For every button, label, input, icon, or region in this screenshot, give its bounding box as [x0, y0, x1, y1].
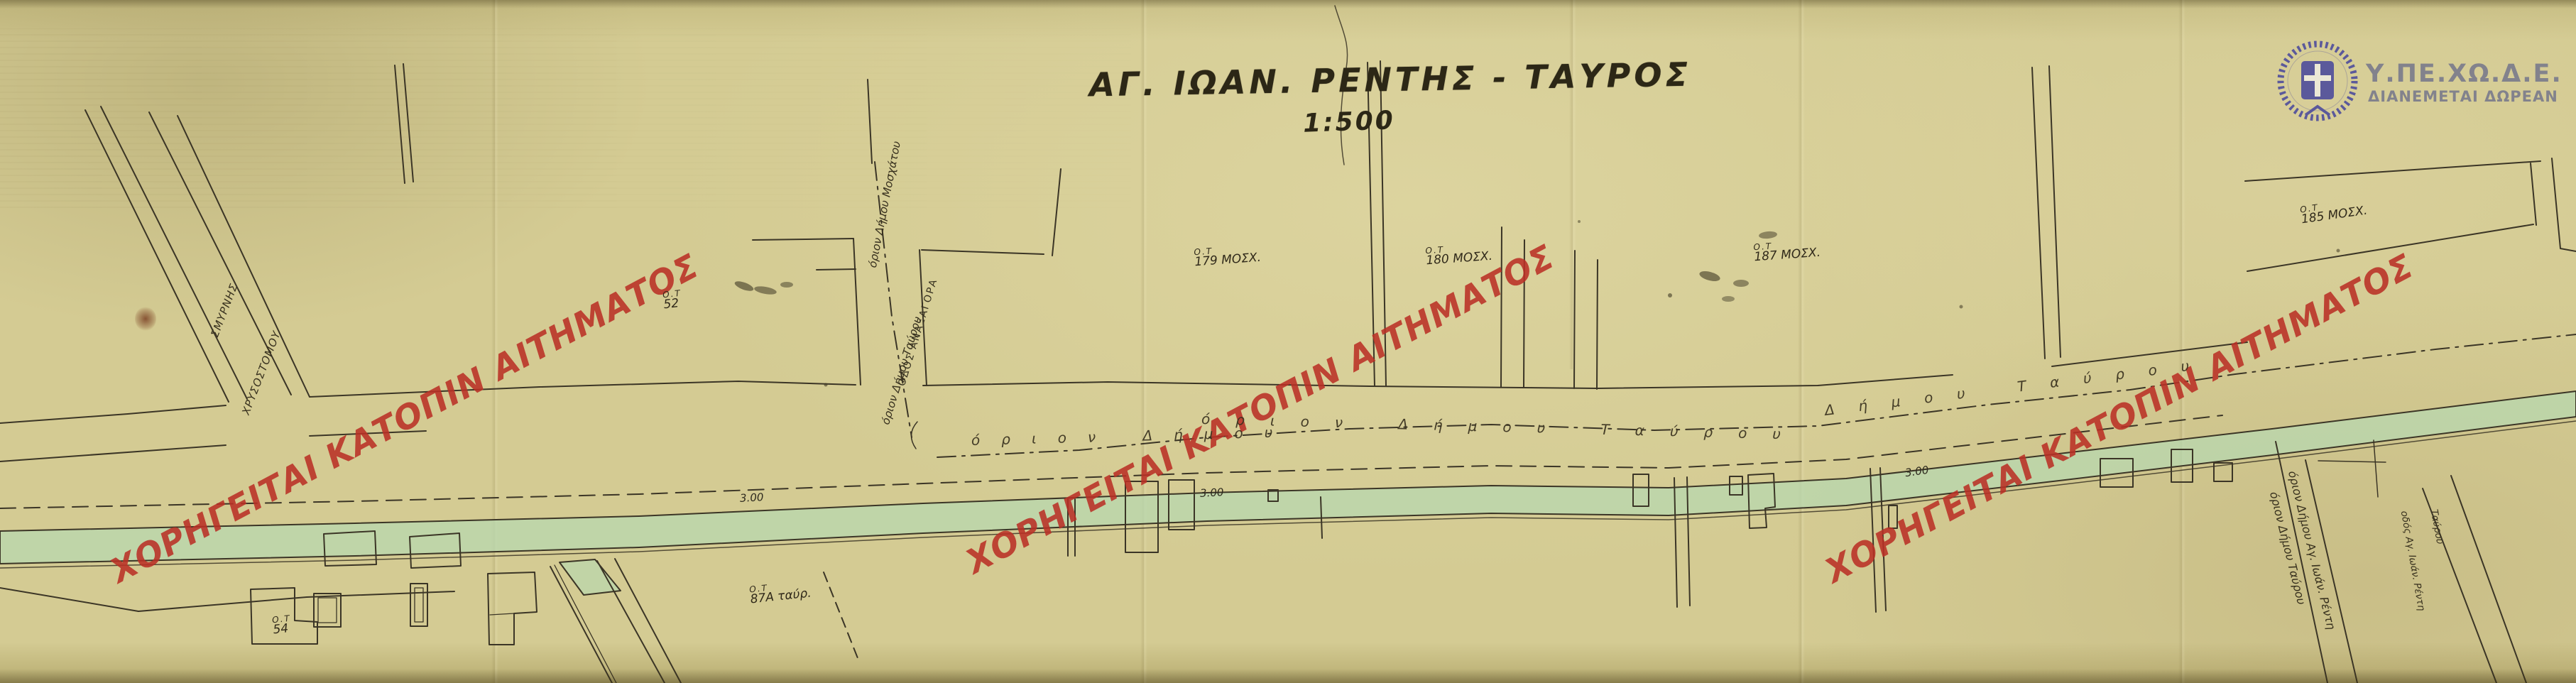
agency-acronym: Υ.ΠΕ.ΧΩ.Δ.Ε. [2366, 60, 2563, 88]
double-line [403, 64, 413, 182]
side-street-green-mouth [560, 559, 621, 595]
building [410, 584, 427, 626]
block-label-54: Ο.Τ 54 [272, 614, 293, 637]
block-label-179: Ο.Τ 179 ΜΟΣΧ. [1194, 244, 1261, 268]
block-edge [2531, 163, 2536, 225]
scan-edge-shadow-bottom [0, 669, 2576, 683]
street-edge [101, 106, 247, 399]
building [488, 572, 537, 645]
coat-of-arms-icon [2281, 44, 2354, 118]
block-edge [753, 239, 853, 240]
building [318, 598, 337, 623]
block-label-52: Ο.Τ 52 [662, 289, 683, 312]
lot-line [1574, 251, 1575, 388]
street-edge [2049, 66, 2061, 357]
double-line [395, 65, 405, 183]
street-edge [868, 80, 872, 163]
side-street-edge [615, 559, 681, 683]
street-edge [2451, 476, 2526, 683]
street-edge [85, 110, 229, 402]
road-north-edge [923, 375, 1953, 388]
road-width-dimension: 3.00 [1200, 486, 1224, 500]
street-edge [2032, 67, 2045, 359]
tick-line [2374, 440, 2378, 497]
block-label-187: Ο.Τ 187 ΜΟΣΧ. [1753, 239, 1821, 263]
building [490, 613, 514, 615]
boundary-bracket [911, 422, 917, 449]
block-edge [817, 269, 856, 270]
scanned-map-sheet: ΑΓ. ΙΩΑΝ. ΡΕΝΤΗΣ - ΤΑΥΡΟΣ 1:500 Υ.ΠΕ.ΧΩ.… [0, 0, 2576, 683]
side-street-edge [597, 561, 665, 683]
block-edge [2245, 161, 2540, 181]
road-inner-line [0, 445, 226, 461]
map-scale: 1:500 [1303, 106, 1396, 138]
road-edge-left-low [138, 591, 454, 611]
boundary-dash-south [824, 572, 859, 662]
lot-line [1501, 227, 1502, 387]
lot-line [1597, 260, 1598, 389]
street-edge [2552, 158, 2576, 251]
street-edge [853, 239, 861, 385]
street-edge [178, 116, 310, 397]
survey-linework [0, 0, 2576, 683]
road-width-dimension: 3.00 [740, 491, 764, 505]
road-north-edge [310, 381, 856, 397]
linework-group [0, 6, 2576, 683]
block-number: 52 [663, 297, 683, 312]
block-label-180: Ο.Τ 180 ΜΟΣΧ. [1425, 242, 1492, 267]
scan-edge-shadow-top [0, 0, 2576, 9]
block-edge [922, 250, 1044, 254]
block-number: 54 [273, 623, 293, 637]
block-edge [1052, 169, 1061, 256]
agency-distribution-note: ΔΙΑΝΕΜΕΤΑΙ ΔΩΡΕΑΝ [2368, 88, 2558, 105]
road-edge-left-low [0, 588, 138, 611]
road-north-edge [0, 405, 226, 423]
